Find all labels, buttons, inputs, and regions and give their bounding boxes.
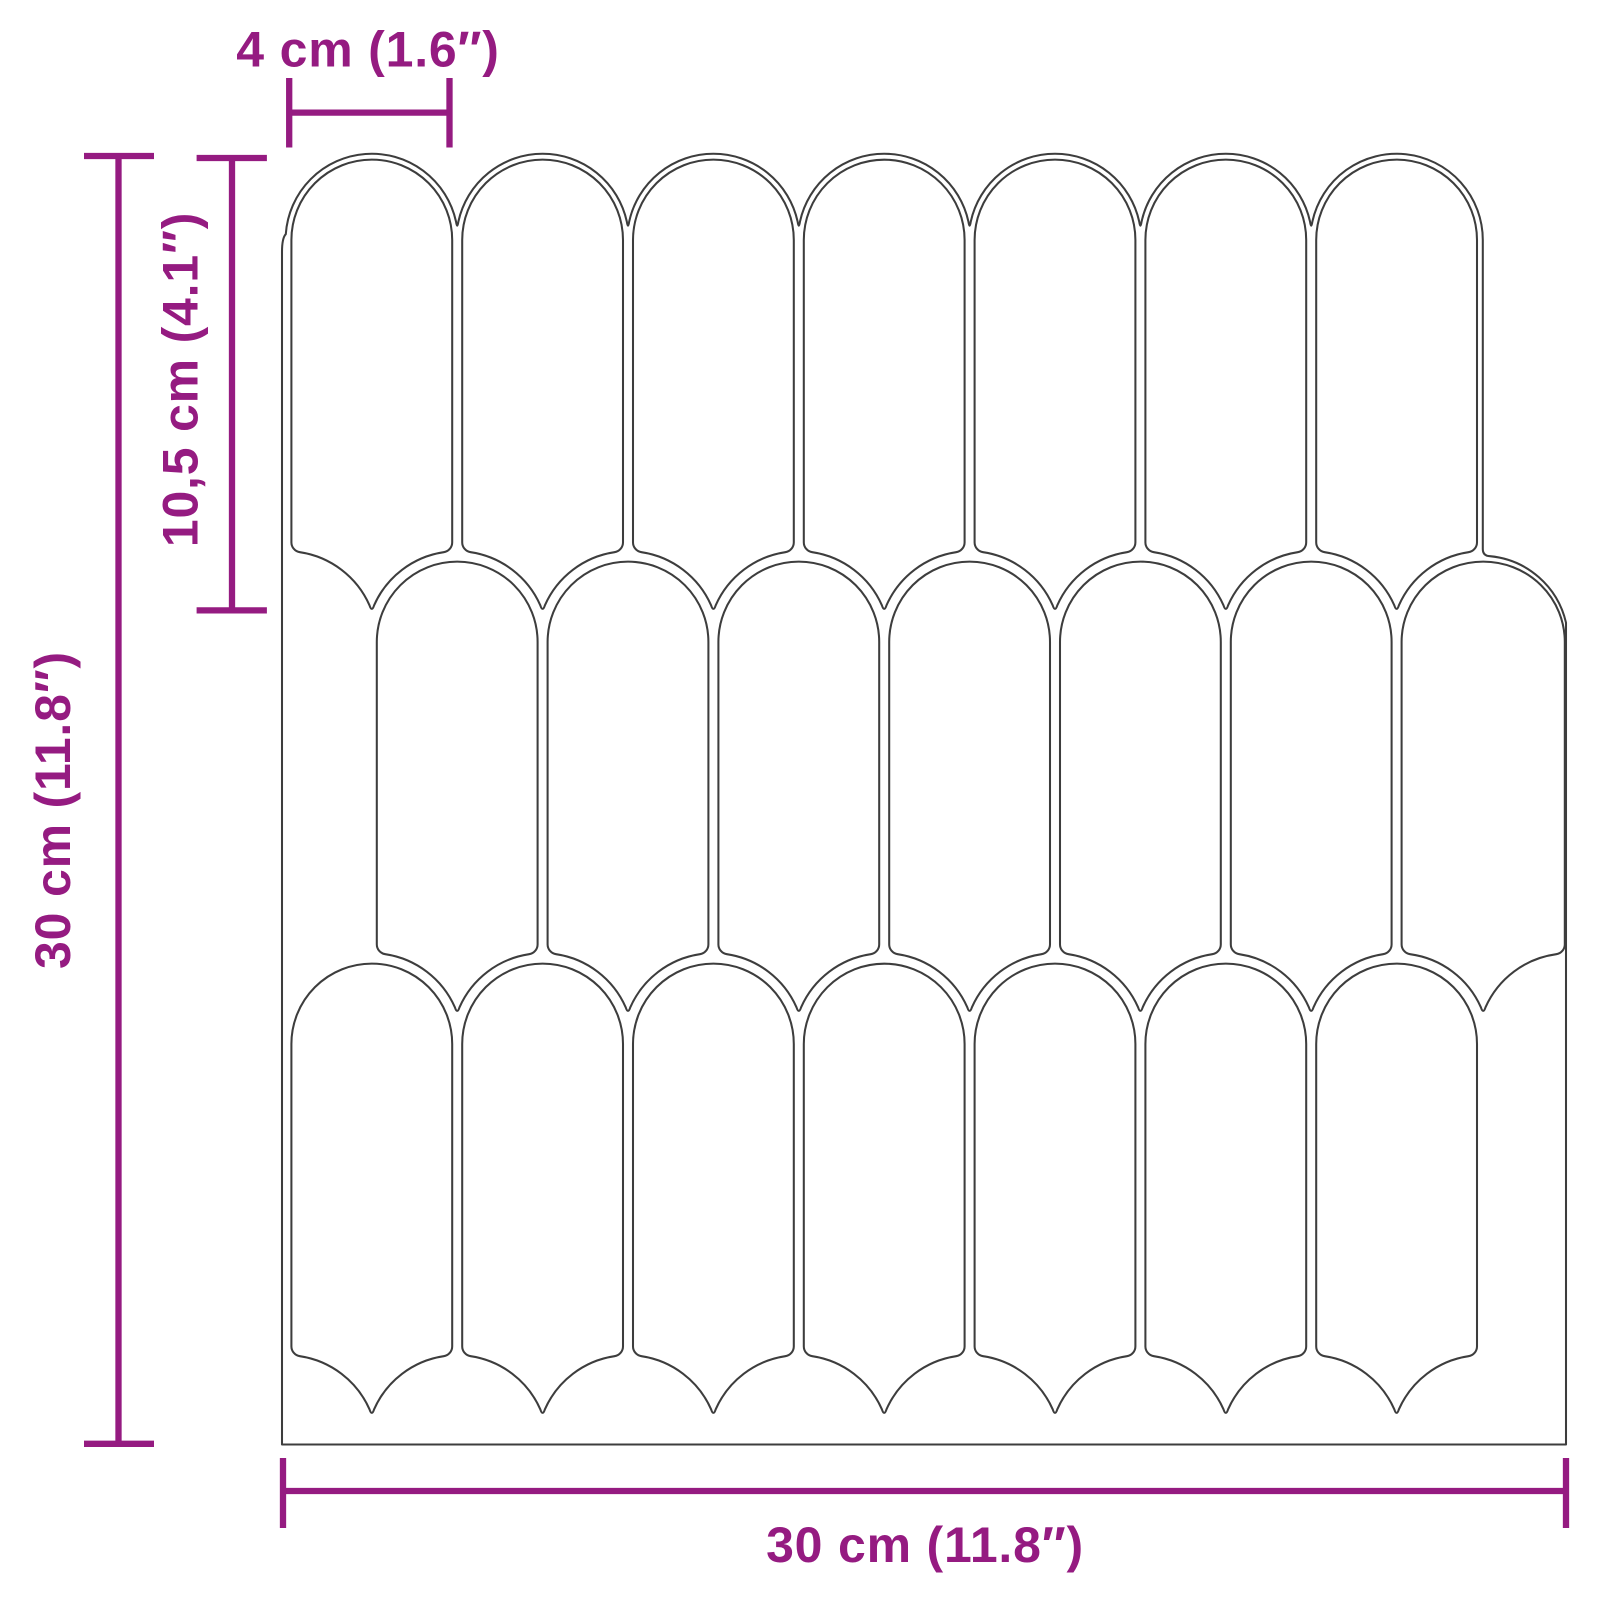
svg-text:30 cm (11.8″): 30 cm (11.8″)	[25, 651, 81, 969]
svg-text:30 cm (11.8″): 30 cm (11.8″)	[766, 1517, 1084, 1573]
svg-text:10,5 cm (4.1″): 10,5 cm (4.1″)	[152, 212, 208, 547]
svg-text:4 cm (1.6″): 4 cm (1.6″)	[236, 22, 499, 78]
